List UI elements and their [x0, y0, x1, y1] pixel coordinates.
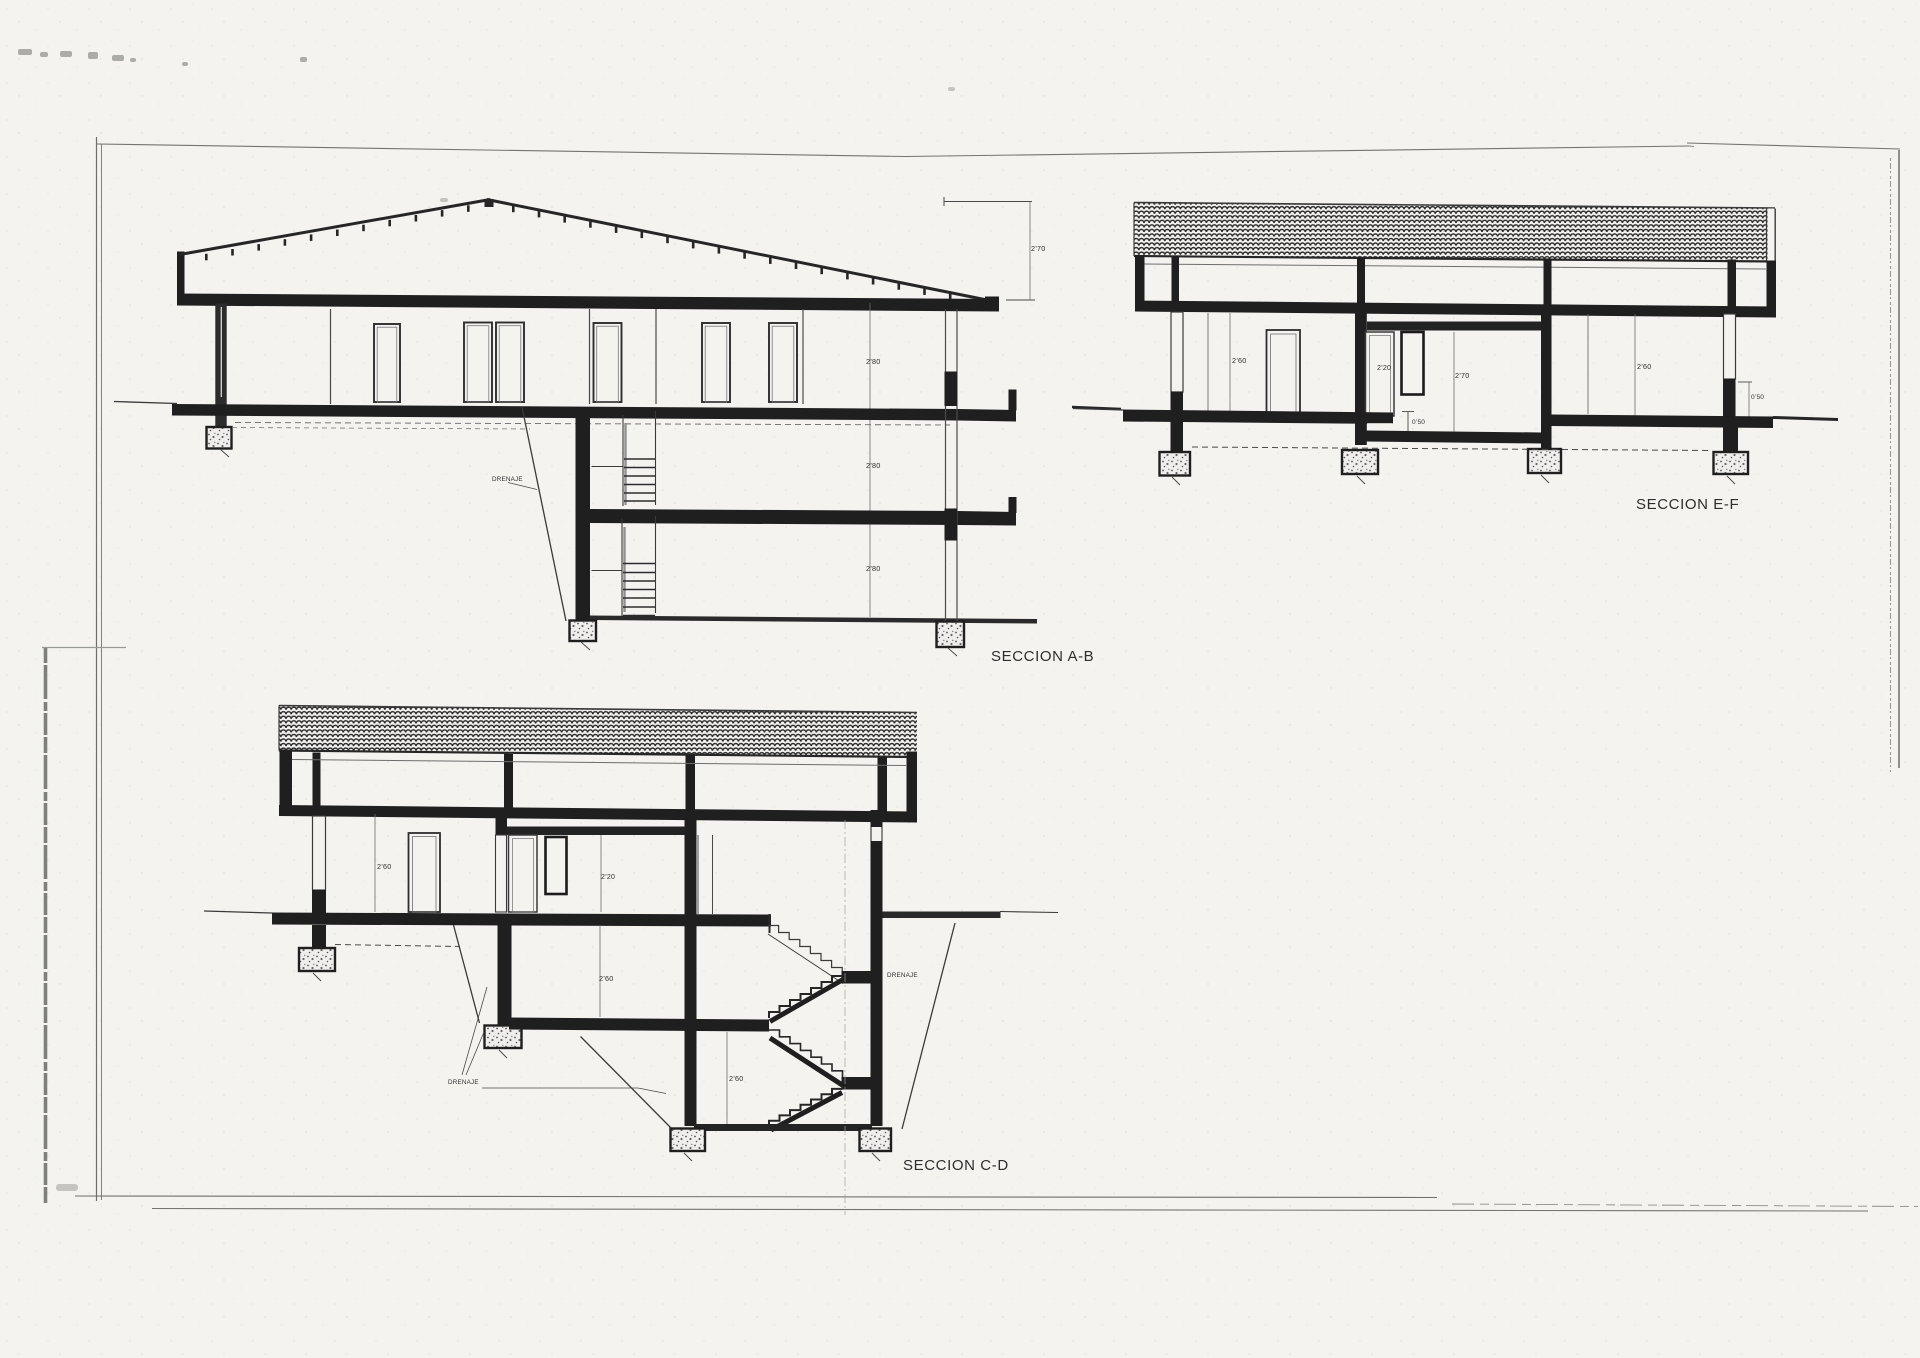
svg-text:2’80: 2’80	[866, 357, 880, 366]
svg-text:0’50: 0’50	[1751, 394, 1764, 401]
svg-text:2’20: 2’20	[1377, 365, 1391, 372]
svg-text:2’60: 2’60	[1232, 356, 1246, 365]
svg-text:2’60: 2’60	[1637, 362, 1651, 371]
svg-text:2’80: 2’80	[866, 461, 880, 470]
svg-text:2’60: 2’60	[377, 862, 391, 871]
svg-text:2’70: 2’70	[1455, 371, 1469, 380]
svg-text:SECCION A-B: SECCION A-B	[991, 648, 1094, 665]
svg-text:DRENAJE: DRENAJE	[492, 476, 523, 483]
svg-text:2’70: 2’70	[1031, 244, 1045, 253]
svg-text:DRENAJE: DRENAJE	[887, 972, 918, 979]
svg-text:SECCION C-D: SECCION C-D	[903, 1157, 1009, 1174]
svg-text:2’60: 2’60	[599, 974, 613, 983]
svg-text:0’50: 0’50	[1412, 419, 1425, 426]
svg-text:2’60: 2’60	[729, 1074, 743, 1083]
svg-text:SECCION E-F: SECCION E-F	[1636, 496, 1739, 513]
svg-text:2’80: 2’80	[866, 564, 880, 573]
svg-text:2’20: 2’20	[601, 874, 615, 881]
svg-text:DRENAJE: DRENAJE	[448, 1079, 479, 1086]
